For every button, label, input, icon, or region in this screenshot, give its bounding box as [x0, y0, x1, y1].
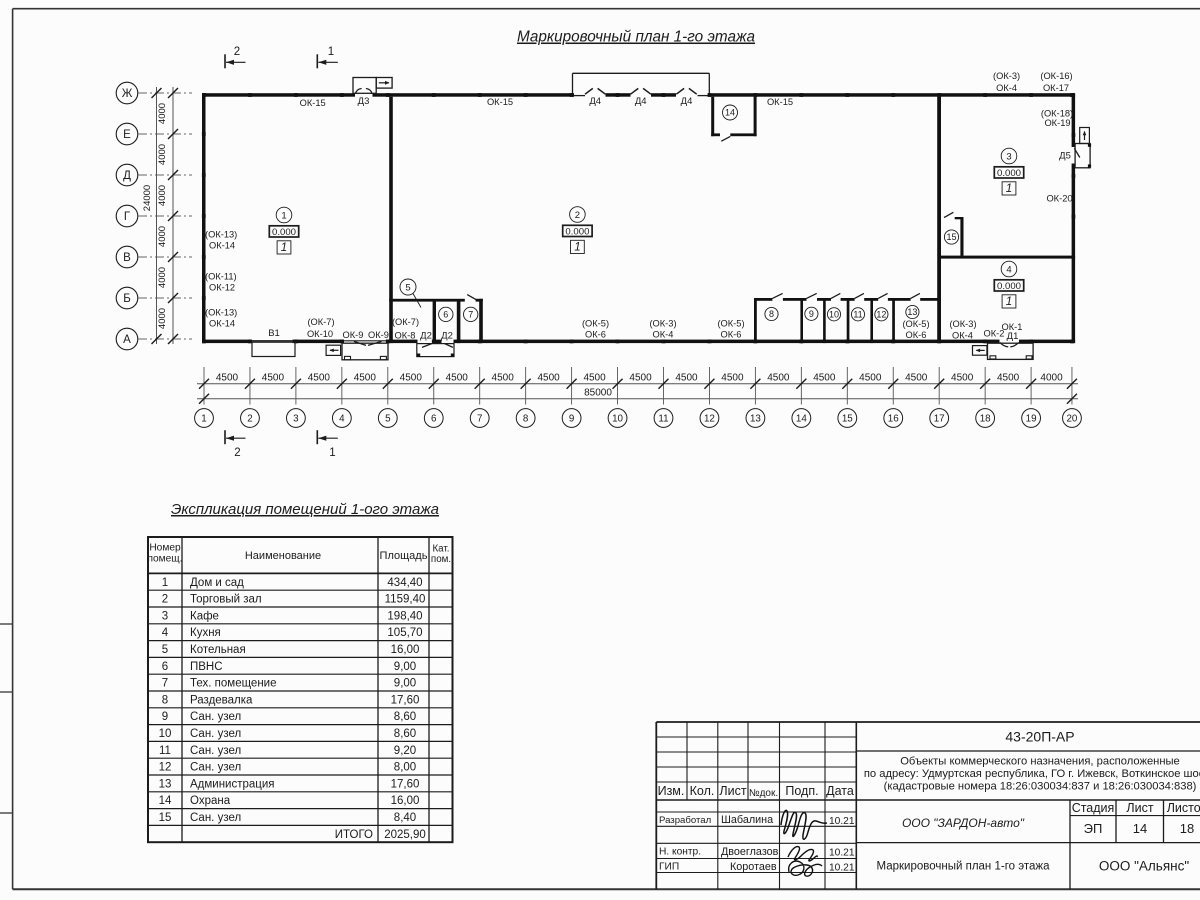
svg-text:4000: 4000	[157, 185, 168, 206]
svg-text:11: 11	[658, 414, 668, 425]
svg-text:Сан. узел: Сан. узел	[190, 812, 241, 824]
svg-text:Шабалина: Шабалина	[721, 814, 773, 826]
svg-text:ОК-19: ОК-19	[1044, 118, 1070, 128]
svg-text:0.000: 0.000	[997, 281, 1021, 292]
svg-text:1: 1	[281, 210, 286, 221]
svg-text:9,00: 9,00	[394, 661, 416, 673]
svg-text:Кафе: Кафе	[190, 610, 219, 622]
svg-text:5: 5	[162, 644, 168, 656]
svg-text:2: 2	[247, 414, 252, 425]
svg-text:№док.: №док.	[749, 788, 778, 799]
svg-text:ОК-15: ОК-15	[487, 97, 513, 107]
svg-text:Площадь: Площадь	[380, 550, 428, 562]
svg-text:Лист: Лист	[719, 784, 746, 798]
svg-text:0.000: 0.000	[565, 226, 589, 237]
svg-text:10: 10	[612, 414, 623, 425]
svg-text:ОК-17: ОК-17	[1043, 83, 1069, 93]
svg-text:7: 7	[468, 310, 473, 320]
svg-text:15: 15	[159, 812, 172, 824]
svg-text:24000: 24000	[142, 185, 153, 211]
svg-text:4000: 4000	[157, 308, 168, 329]
svg-text:(ОК-5): (ОК-5)	[717, 319, 744, 329]
svg-text:ГИП: ГИП	[659, 862, 679, 873]
svg-text:(ОК-5): (ОК-5)	[582, 319, 609, 329]
svg-text:9: 9	[569, 414, 574, 425]
svg-text:Д4: Д4	[635, 96, 647, 107]
svg-text:Кухня: Кухня	[190, 627, 221, 639]
svg-text:1: 1	[1006, 183, 1012, 195]
svg-text:4500: 4500	[262, 373, 285, 384]
svg-text:ООО "ЗАРДОН-авто": ООО "ЗАРДОН-авто"	[902, 816, 1025, 830]
svg-text:Н. контр.: Н. контр.	[659, 847, 701, 858]
svg-text:Экспликация помещений 1-ого эт: Экспликация помещений 1-ого этажа	[171, 501, 439, 518]
svg-text:Д3: Д3	[358, 96, 370, 107]
svg-text:8,40: 8,40	[394, 812, 416, 824]
svg-text:10: 10	[829, 310, 839, 320]
svg-text:4000: 4000	[157, 267, 168, 288]
svg-text:4500: 4500	[951, 373, 974, 384]
svg-text:Д1: Д1	[1007, 331, 1019, 342]
svg-text:Номер: Номер	[149, 543, 181, 554]
svg-text:10.21: 10.21	[829, 848, 855, 859]
svg-text:1: 1	[329, 447, 335, 459]
svg-text:ОК-6: ОК-6	[721, 330, 742, 340]
svg-text:8,00: 8,00	[394, 762, 416, 774]
svg-text:Д2: Д2	[441, 331, 453, 342]
svg-text:14: 14	[1133, 821, 1147, 836]
svg-text:6: 6	[443, 310, 448, 320]
svg-text:4500: 4500	[997, 373, 1020, 384]
svg-text:13: 13	[750, 414, 761, 425]
svg-text:Д2: Д2	[420, 331, 432, 342]
svg-text:8: 8	[162, 694, 168, 706]
svg-text:85000: 85000	[584, 388, 612, 399]
svg-text:43-20П-АР: 43-20П-АР	[1005, 729, 1074, 745]
svg-text:4000: 4000	[157, 226, 168, 247]
svg-text:Котельная: Котельная	[190, 644, 246, 656]
svg-text:16,00: 16,00	[391, 644, 420, 656]
svg-text:12: 12	[704, 414, 715, 425]
svg-text:Сан. узел: Сан. узел	[190, 745, 241, 757]
svg-text:1: 1	[162, 577, 168, 589]
svg-text:15: 15	[946, 232, 956, 242]
svg-text:Д4: Д4	[681, 96, 693, 107]
svg-text:Д4: Д4	[589, 96, 601, 107]
svg-text:Сан. узел: Сан. узел	[190, 728, 241, 740]
svg-text:ОК-4: ОК-4	[952, 330, 973, 340]
svg-text:(ОК-18): (ОК-18)	[1041, 109, 1073, 119]
svg-text:1: 1	[574, 242, 580, 254]
svg-text:Разработал: Разработал	[659, 815, 711, 826]
svg-text:Е: Е	[123, 129, 131, 141]
svg-text:(ОК-7): (ОК-7)	[307, 317, 334, 327]
svg-text:ОК-15: ОК-15	[767, 97, 793, 107]
svg-text:4500: 4500	[675, 373, 698, 384]
svg-text:Лист: Лист	[1126, 801, 1153, 815]
svg-text:14: 14	[796, 414, 807, 425]
svg-text:17,60: 17,60	[391, 694, 420, 706]
svg-text:ЭП: ЭП	[1084, 821, 1103, 836]
svg-text:(ОК-3): (ОК-3)	[993, 71, 1020, 81]
svg-text:ИТОГО: ИТОГО	[335, 829, 373, 841]
svg-text:4000: 4000	[1040, 373, 1063, 384]
svg-text:Маркировочный план 1-го этажа: Маркировочный план 1-го этажа	[877, 861, 1051, 873]
svg-text:1: 1	[328, 46, 334, 58]
svg-text:Изм.: Изм.	[658, 784, 685, 798]
svg-text:В: В	[123, 252, 131, 264]
svg-text:6: 6	[162, 661, 168, 673]
svg-text:Маркировочный план 1-го этажа: Маркировочный план 1-го этажа	[517, 29, 755, 46]
svg-text:4500: 4500	[538, 373, 561, 384]
svg-text:4500: 4500	[400, 373, 423, 384]
svg-text:11: 11	[853, 310, 862, 320]
svg-text:8,60: 8,60	[394, 711, 416, 723]
svg-text:4: 4	[1006, 264, 1011, 275]
svg-text:3: 3	[162, 610, 168, 622]
svg-text:18: 18	[980, 414, 991, 425]
svg-text:(ОК-11): (ОК-11)	[205, 272, 237, 282]
svg-text:4500: 4500	[767, 373, 790, 384]
svg-text:ОК-4: ОК-4	[653, 330, 674, 340]
svg-text:12: 12	[876, 310, 886, 320]
svg-text:помещ.: помещ.	[147, 554, 182, 565]
svg-text:ОК-9: ОК-9	[368, 330, 389, 340]
svg-text:4500: 4500	[905, 373, 928, 384]
svg-text:Г: Г	[124, 211, 131, 223]
svg-text:Объекты коммерческого назначен: Объекты коммерческого назначения, распол…	[900, 756, 1180, 768]
svg-text:14: 14	[159, 795, 172, 807]
svg-text:Раздевалка: Раздевалка	[190, 694, 253, 706]
svg-text:8,60: 8,60	[394, 728, 416, 740]
svg-text:5: 5	[385, 414, 391, 425]
svg-text:10.21: 10.21	[829, 816, 855, 827]
svg-text:Администрация: Администрация	[190, 778, 275, 790]
svg-text:105,70: 105,70	[387, 627, 422, 639]
svg-text:(ОК-3): (ОК-3)	[649, 319, 676, 329]
svg-text:ООО "Альянс": ООО "Альянс"	[1099, 859, 1189, 874]
svg-text:Подп.: Подп.	[785, 784, 818, 798]
svg-text:Д: Д	[123, 170, 131, 182]
svg-text:13: 13	[907, 307, 917, 317]
svg-text:4500: 4500	[629, 373, 652, 384]
svg-text:2: 2	[575, 210, 580, 221]
svg-text:ОК-6: ОК-6	[585, 330, 606, 340]
svg-text:12: 12	[159, 762, 172, 774]
svg-text:ОК-4: ОК-4	[996, 83, 1017, 93]
svg-text:Листов: Листов	[1167, 801, 1200, 815]
svg-text:3: 3	[1006, 151, 1011, 162]
svg-text:по адресу: Удмуртская республи: по адресу: Удмуртская республика, ГО г. …	[864, 768, 1200, 780]
svg-text:9,00: 9,00	[394, 678, 416, 690]
svg-text:Тех. помещение: Тех. помещение	[190, 678, 277, 690]
svg-text:ОК-10: ОК-10	[307, 329, 333, 339]
svg-text:18: 18	[1180, 821, 1194, 836]
svg-text:0.000: 0.000	[272, 227, 296, 238]
svg-text:10: 10	[159, 728, 172, 740]
svg-text:4500: 4500	[354, 373, 377, 384]
svg-text:4500: 4500	[216, 373, 239, 384]
svg-text:2025,90: 2025,90	[384, 829, 426, 841]
svg-text:(ОК-3): (ОК-3)	[949, 319, 976, 329]
svg-text:4500: 4500	[446, 373, 469, 384]
svg-text:6: 6	[431, 414, 437, 425]
svg-text:Кат.: Кат.	[432, 544, 449, 555]
svg-text:434,40: 434,40	[387, 577, 422, 589]
svg-text:ОК-14: ОК-14	[209, 241, 235, 251]
svg-text:0.000: 0.000	[997, 168, 1021, 179]
svg-text:2: 2	[234, 447, 240, 459]
svg-text:4000: 4000	[157, 144, 168, 165]
svg-text:Торговый зал: Торговый зал	[190, 594, 262, 606]
svg-text:15: 15	[842, 414, 853, 425]
svg-text:4500: 4500	[859, 373, 882, 384]
svg-text:9: 9	[809, 309, 814, 319]
svg-text:Д5: Д5	[1059, 151, 1071, 162]
svg-text:В1: В1	[268, 328, 280, 339]
svg-text:(ОК-13): (ОК-13)	[205, 308, 237, 318]
svg-text:Ж: Ж	[122, 88, 133, 100]
svg-text:2: 2	[234, 46, 240, 58]
svg-text:3: 3	[293, 414, 299, 425]
svg-text:9: 9	[162, 711, 168, 723]
svg-text:17,60: 17,60	[391, 778, 420, 790]
svg-text:Коротаев: Коротаев	[730, 861, 777, 873]
svg-text:9,20: 9,20	[394, 745, 416, 757]
svg-text:4500: 4500	[308, 373, 331, 384]
svg-text:4500: 4500	[721, 373, 744, 384]
svg-text:4: 4	[339, 414, 345, 425]
svg-text:8: 8	[769, 309, 774, 319]
svg-text:2: 2	[162, 594, 168, 606]
svg-text:Дата: Дата	[826, 784, 854, 798]
svg-text:4500: 4500	[583, 373, 606, 384]
svg-text:19: 19	[1026, 414, 1037, 425]
svg-text:ОК-6: ОК-6	[906, 330, 927, 340]
svg-text:1: 1	[1006, 296, 1012, 308]
svg-text:16,00: 16,00	[391, 795, 420, 807]
svg-text:4500: 4500	[492, 373, 515, 384]
svg-text:пом.: пом.	[431, 554, 451, 565]
svg-text:ПВНС: ПВНС	[190, 661, 223, 673]
svg-text:16: 16	[888, 414, 899, 425]
svg-text:20: 20	[1066, 414, 1077, 425]
svg-text:Сан. узел: Сан. узел	[190, 711, 241, 723]
svg-text:ОК-8: ОК-8	[395, 331, 416, 341]
svg-text:Охрана: Охрана	[190, 795, 231, 807]
svg-text:ОК-14: ОК-14	[209, 319, 235, 329]
svg-text:ОК-15: ОК-15	[300, 98, 326, 108]
svg-text:11: 11	[159, 745, 171, 757]
svg-text:Наименование: Наименование	[245, 550, 321, 562]
svg-text:10.21: 10.21	[829, 863, 855, 874]
svg-text:(кадастровые номера 18:26:0300: (кадастровые номера 18:26:030034:837 и 1…	[884, 781, 1197, 793]
svg-text:Дом и сад: Дом и сад	[190, 577, 244, 589]
svg-text:ОК-1: ОК-1	[1002, 322, 1023, 332]
svg-text:5: 5	[405, 282, 410, 293]
svg-text:А: А	[123, 334, 131, 346]
svg-text:1159,40: 1159,40	[385, 594, 426, 606]
svg-text:Кол.: Кол.	[690, 784, 715, 798]
svg-text:14: 14	[725, 108, 735, 118]
svg-text:8: 8	[523, 414, 529, 425]
svg-text:4500: 4500	[813, 373, 836, 384]
svg-text:1: 1	[281, 242, 287, 254]
svg-text:(ОК-16): (ОК-16)	[1040, 71, 1072, 81]
svg-text:198,40: 198,40	[387, 610, 422, 622]
svg-text:1: 1	[201, 414, 206, 425]
svg-text:Сан. узел: Сан. узел	[190, 762, 241, 774]
svg-text:4: 4	[162, 627, 169, 639]
svg-text:(ОК-5): (ОК-5)	[902, 319, 929, 329]
svg-text:(ОК-7): (ОК-7)	[392, 317, 419, 327]
svg-text:Б: Б	[123, 293, 131, 305]
svg-text:ОК-12: ОК-12	[209, 283, 235, 293]
svg-text:(ОК-13): (ОК-13)	[205, 230, 237, 240]
svg-text:Двоеглазов: Двоеглазов	[721, 846, 779, 858]
svg-text:13: 13	[159, 778, 172, 790]
svg-text:Стадия: Стадия	[1072, 801, 1115, 815]
svg-text:ОК-9: ОК-9	[343, 330, 364, 340]
svg-text:7: 7	[162, 678, 168, 690]
svg-text:17: 17	[934, 414, 945, 425]
svg-text:7: 7	[477, 414, 482, 425]
svg-text:ОК-20: ОК-20	[1046, 193, 1072, 203]
svg-text:4000: 4000	[157, 103, 168, 124]
